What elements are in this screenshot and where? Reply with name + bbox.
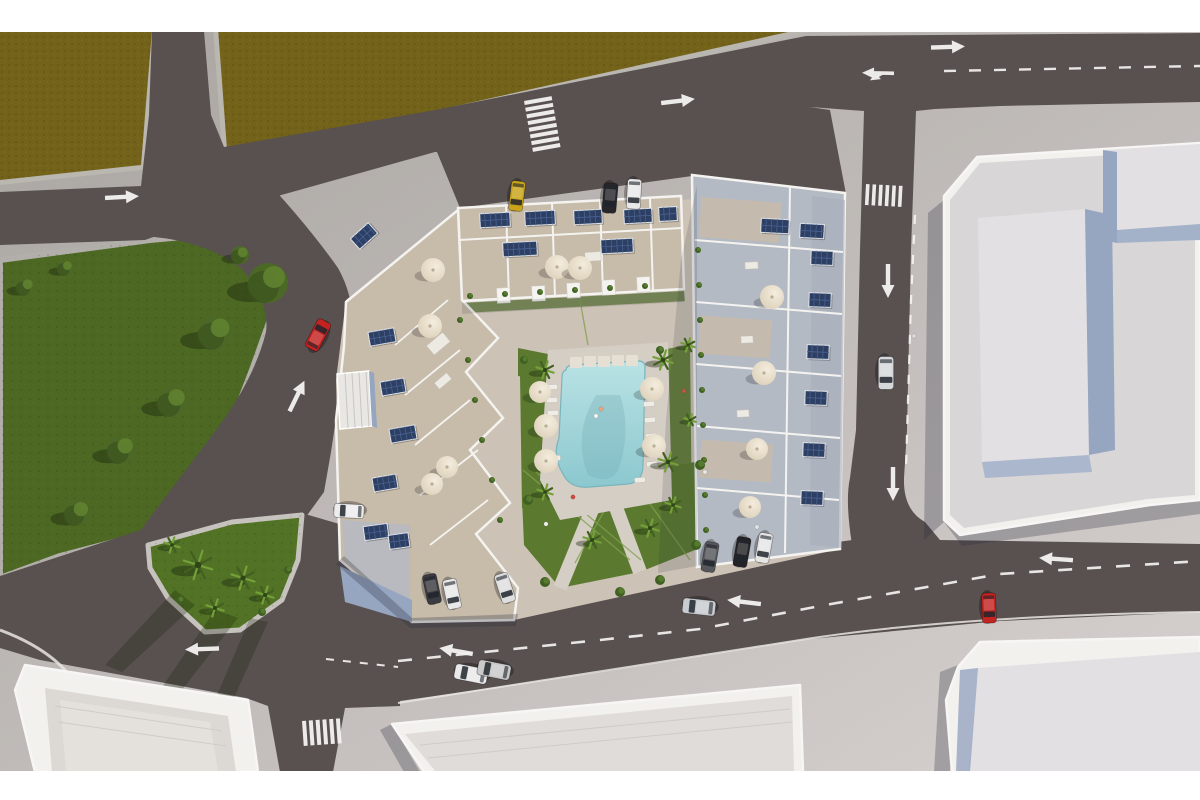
solar-panel-array xyxy=(761,218,791,235)
solar-panel-array xyxy=(805,391,829,407)
planter-bush xyxy=(572,287,578,293)
planter-bush xyxy=(489,477,495,483)
planter-bush xyxy=(465,357,471,363)
driving-silver-car-east-road xyxy=(875,353,894,390)
solar-panel-array xyxy=(601,238,635,255)
person xyxy=(544,522,548,526)
planter-bush xyxy=(467,293,473,299)
planter-bush xyxy=(520,356,528,364)
planter-bush xyxy=(540,577,550,587)
pool-lounger xyxy=(644,417,655,423)
person xyxy=(755,525,759,529)
solar-panel-array xyxy=(809,293,833,309)
planter-bush xyxy=(258,608,266,616)
pool-lounger xyxy=(643,401,654,407)
solar-panel-array xyxy=(800,223,826,240)
planter-bush xyxy=(691,540,701,550)
planter-bush xyxy=(696,282,702,288)
person xyxy=(912,334,916,338)
planter-bush xyxy=(695,460,705,470)
planter-bush xyxy=(176,596,184,604)
solar-panel-array xyxy=(807,345,831,361)
planter-bush xyxy=(703,527,709,533)
commercial-building-se xyxy=(934,637,1200,772)
solar-panel-array xyxy=(659,206,679,222)
solar-panel-array xyxy=(480,212,512,229)
planter-bush xyxy=(695,247,701,253)
planter-bush xyxy=(642,283,648,289)
planter-bush xyxy=(497,517,503,523)
planter-bush xyxy=(655,575,665,585)
aerial-site-render xyxy=(0,0,1200,800)
planter-bush xyxy=(700,422,706,428)
planter-bush xyxy=(537,289,543,295)
planter-bush xyxy=(472,397,478,403)
solar-panel-array xyxy=(811,251,835,267)
garage-annex xyxy=(337,371,377,429)
tower-roof xyxy=(978,209,1089,462)
planter-bush xyxy=(457,317,463,323)
letterbox-top xyxy=(0,0,1200,32)
person xyxy=(682,389,686,393)
planter-bush xyxy=(479,437,485,443)
person xyxy=(594,414,598,418)
commercial-building-ne xyxy=(924,143,1200,546)
planter-bush xyxy=(502,291,508,297)
planter-bush xyxy=(702,492,708,498)
solar-panel-array xyxy=(503,241,539,258)
planter-bush xyxy=(699,387,705,393)
letterbox-bottom xyxy=(0,771,1200,800)
solar-panel-array xyxy=(388,532,411,550)
dirt-field-left xyxy=(0,30,152,180)
planter-bush xyxy=(697,317,703,323)
solar-panel-array xyxy=(525,210,557,227)
pool-lounger xyxy=(634,477,645,483)
solar-panel-array xyxy=(803,443,827,459)
person xyxy=(599,407,603,411)
planter-bush xyxy=(523,495,533,505)
planter-bush xyxy=(698,352,704,358)
planter-bush xyxy=(607,285,613,291)
swimming-pool xyxy=(540,342,672,520)
person xyxy=(571,495,575,499)
solar-panel-array xyxy=(624,208,654,225)
person xyxy=(703,470,707,474)
solar-panel-array xyxy=(801,491,825,507)
planter-bush xyxy=(615,587,625,597)
solar-panel-array xyxy=(574,209,604,226)
scene-canvas xyxy=(0,0,1200,800)
planter-bush xyxy=(284,566,292,574)
